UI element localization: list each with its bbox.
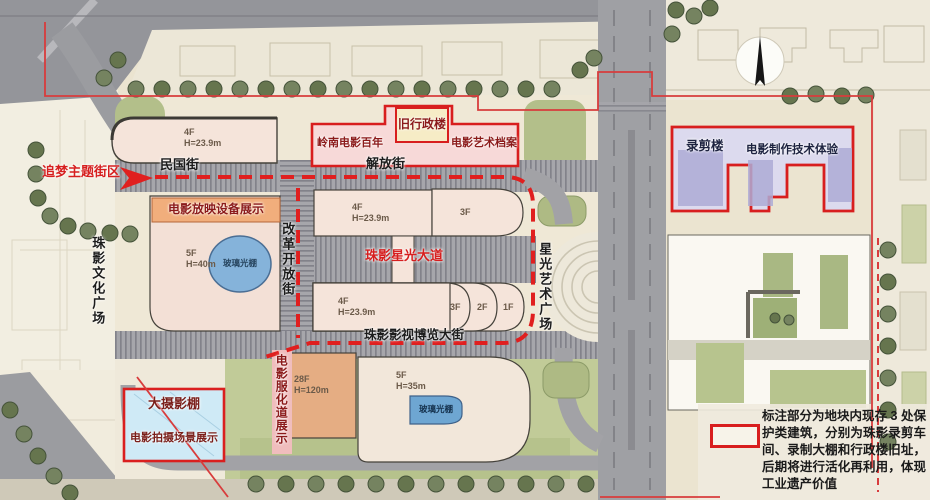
label-costume-expo: 电影服化道展示 bbox=[274, 354, 287, 452]
building-label-arc2: 2F bbox=[477, 302, 488, 313]
floors-text: 4F bbox=[338, 296, 375, 307]
height-text: H=23.9m bbox=[338, 307, 375, 318]
building-label-mid-upper: 4F H=23.9m bbox=[352, 202, 389, 225]
building-label-left-glass: 5F H=40m bbox=[186, 248, 216, 271]
building-label-3f: 3F bbox=[460, 207, 471, 218]
label-shooting-scene: 电影拍摄场景展示 bbox=[124, 432, 224, 444]
floors-text: 5F bbox=[396, 370, 426, 381]
label-art-archive: 电影艺术档案 bbox=[446, 137, 522, 149]
floors-text: 4F bbox=[352, 202, 389, 213]
building-label-tower: 28F H=120m bbox=[294, 374, 329, 397]
legend: 标注部分为地块内现存 3 处保护类建筑，分别为珠影录剪车间、录制大棚和行政楼旧址… bbox=[702, 408, 928, 493]
building-label-arc1: 1F bbox=[503, 302, 514, 313]
label-culture-plaza: 珠影文化广场 bbox=[90, 236, 104, 340]
floors-text: 4F bbox=[184, 127, 221, 138]
building-mid-lower bbox=[313, 283, 450, 331]
label-minguo-street: 民国街 bbox=[160, 158, 199, 172]
building-label-south-hall: 5F H=35m bbox=[396, 370, 426, 393]
label-old-admin: 旧行政楼 bbox=[396, 118, 448, 131]
label-expo-street: 珠影影视博览大街 bbox=[346, 329, 482, 343]
legend-note: 标注部分为地块内现存 3 处保护类建筑，分别为珠影录剪车间、录制大棚和行政楼旧址… bbox=[762, 408, 926, 493]
label-glass-shed-small: 玻璃光棚 bbox=[410, 405, 462, 414]
label-film-tech: 电影制作技术体验 bbox=[740, 144, 844, 157]
courtyard-green-4 bbox=[696, 343, 744, 403]
label-reform-street: 改革开放街 bbox=[280, 222, 294, 318]
height-text: H=23.9m bbox=[184, 138, 221, 149]
label-glass-shed-round: 玻璃光棚 bbox=[208, 259, 272, 268]
label-big-studio: 大摄影棚 bbox=[126, 397, 222, 411]
bottom-strip bbox=[0, 479, 598, 500]
label-starlight-plaza: 星光艺术广场 bbox=[537, 242, 551, 346]
height-text: H=120m bbox=[294, 385, 329, 396]
floors-text: 28F bbox=[294, 374, 329, 385]
building-label-arc3: 3F bbox=[450, 302, 461, 313]
label-jiefang-street: 解放街 bbox=[366, 157, 405, 171]
height-text: H=23.9m bbox=[352, 213, 389, 224]
label-star-avenue: 珠影星光大道 bbox=[344, 249, 464, 263]
floors-text: 1F bbox=[503, 302, 514, 313]
building-3f-round bbox=[432, 189, 523, 236]
label-projection-expo: 电影放映设备展示 bbox=[152, 203, 280, 216]
label-lingnan-century: 岭南电影百年 bbox=[312, 137, 388, 149]
floors-text: 3F bbox=[450, 302, 461, 313]
courtyard-green-2 bbox=[820, 255, 848, 329]
floors-text: 2F bbox=[477, 302, 488, 313]
label-theme-district: 追梦主题街区 bbox=[42, 165, 120, 179]
height-text: H=40m bbox=[186, 259, 216, 270]
floors-text: 3F bbox=[460, 207, 471, 218]
legend-swatch bbox=[710, 424, 760, 448]
label-recording-building: 录剪楼 bbox=[686, 140, 724, 154]
courtyard-green-5 bbox=[770, 370, 866, 408]
green-plaza-south bbox=[543, 362, 589, 398]
building-label-mid-lower: 4F H=23.9m bbox=[338, 296, 375, 319]
floors-text: 5F bbox=[186, 248, 216, 259]
north-arrow-icon bbox=[736, 36, 784, 86]
site-plan-map: 追梦主题街区 民国街 解放街 珠影星光大道 珠影影视博览大街 改革开放街 珠影文… bbox=[0, 0, 930, 500]
building-label-top-left: 4F H=23.9m bbox=[184, 127, 221, 150]
height-text: H=35m bbox=[396, 381, 426, 392]
